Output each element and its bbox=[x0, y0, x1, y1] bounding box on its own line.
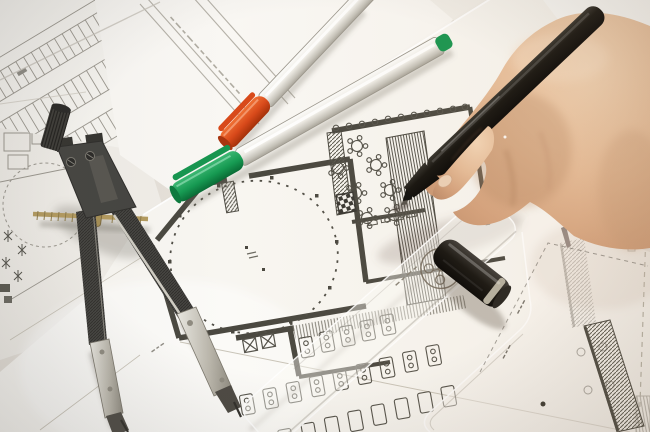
photo-architect-workspace bbox=[0, 0, 650, 432]
edge-dot bbox=[541, 402, 546, 407]
scene-canvas bbox=[0, 0, 650, 432]
checkered-column bbox=[336, 192, 356, 214]
dust-speck bbox=[504, 136, 507, 139]
